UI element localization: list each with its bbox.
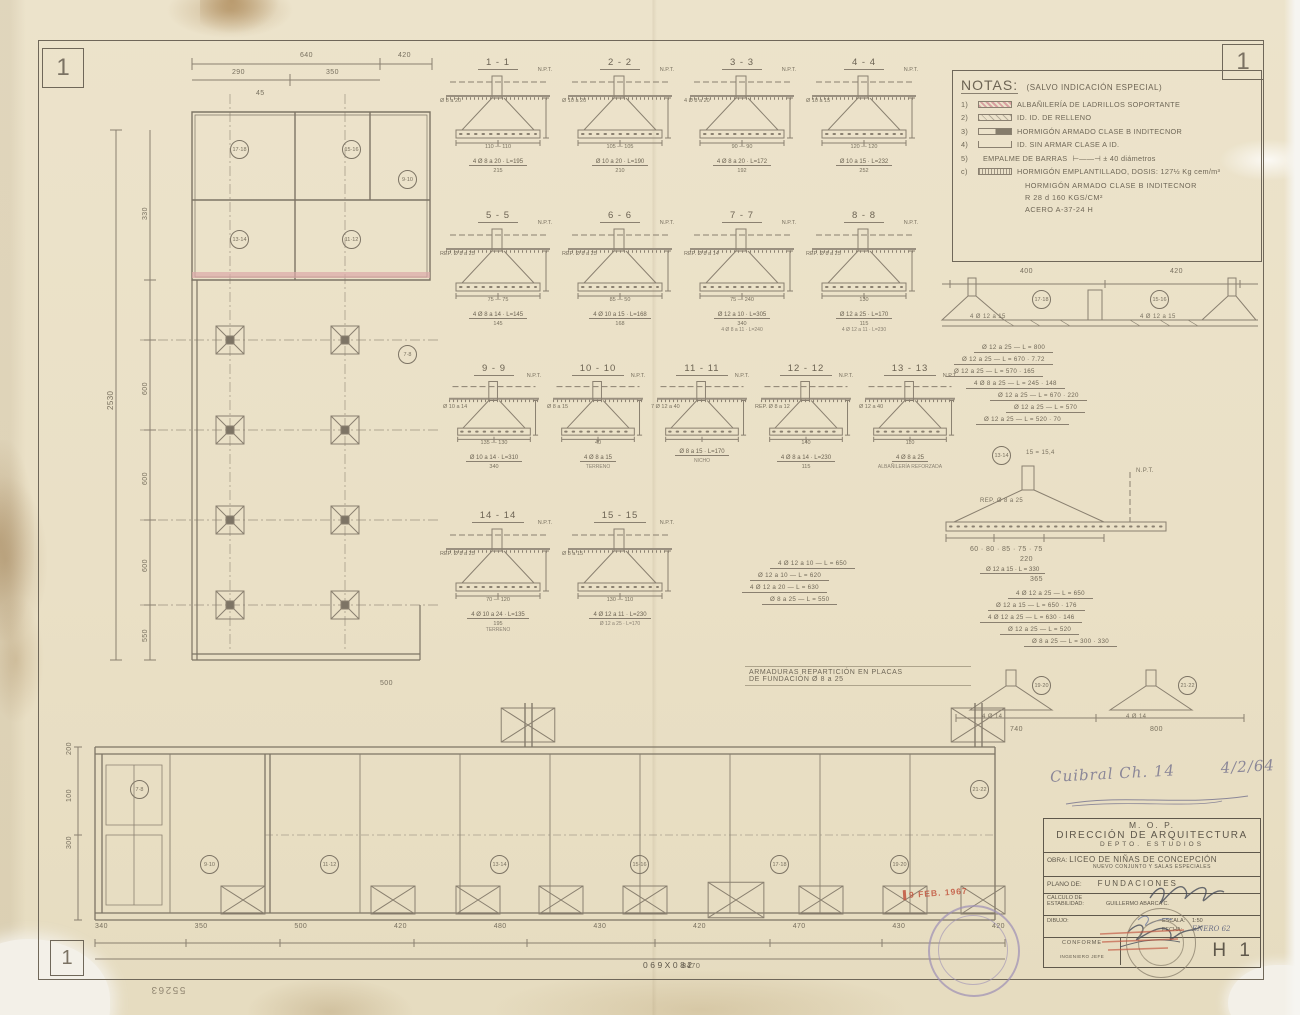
rebar-note: Ø 8 a 15 <box>562 551 583 557</box>
rebar-extra: 4 Ø 12 a 11 · L=230 <box>808 327 920 333</box>
legend-swatch <box>978 168 1012 175</box>
rebar-note: REP. Ø 8 a 25 <box>440 551 475 557</box>
note-text: HORMIGÓN EMPLANTILLADO, DOSIS: 127½ Kg c… <box>1017 167 1220 176</box>
beam-elevation-linework <box>940 276 1260 334</box>
legend-swatch <box>978 128 1012 135</box>
foundation-section-figure: 2 - 2 N.P.T. Ø 10 a 20 105 — 105 Ø 10 a … <box>564 52 676 174</box>
armaduras-line2: DE FUNDACIÓN Ø 8 a 25 <box>749 676 967 683</box>
org-line3: DEPTO. ESTUDIOS <box>1044 841 1260 848</box>
rebar-note: REP. Ø 8 a 25 <box>980 498 1023 504</box>
dim-label: 430 <box>593 923 606 930</box>
section-linework <box>549 378 647 442</box>
note-number: 2) <box>961 113 973 122</box>
note-number: 4) <box>961 140 973 149</box>
rebar-note: Ø 10 a 20 <box>562 98 586 104</box>
annotation-date: 4/2/64 <box>1220 756 1275 777</box>
annotation-underline <box>1062 792 1252 808</box>
npt-label: N.P.T. <box>839 373 853 379</box>
dim-label: 480 <box>494 923 507 930</box>
corner-number: 1 <box>56 54 69 82</box>
rebar-schedule-line: 4 Ø 8 a 25 — L = 245 · 148 <box>966 380 1065 389</box>
npt-label: N.P.T. <box>660 520 674 526</box>
circular-stamp-purple-inner <box>938 915 1008 985</box>
lower-foundation-plan: 340350500420480430420470430420 8470 2001… <box>70 695 1020 985</box>
section-linework <box>442 225 554 299</box>
rebar-note: REP. Ø 8 a 25 <box>806 251 841 257</box>
legend-swatch <box>978 141 1012 148</box>
npt-label: N.P.T. <box>1136 468 1154 474</box>
reference-bubble: 7·8 <box>130 780 149 799</box>
reference-bubble: 15·16 <box>1150 290 1169 309</box>
foundation-section-figure: 11 - 11 N.P.T. 7 Ø 12 a 40 Ø 8 a 15 · L=… <box>653 358 751 470</box>
section-total: 192 <box>686 168 798 174</box>
dim-label: 420 <box>1170 268 1183 275</box>
rebar-callout: Ø 12 a 10 · L=305 <box>714 312 771 319</box>
section-label: 13 - 13 <box>884 363 937 376</box>
note-number: c) <box>961 167 973 176</box>
rebar-schedule-line: Ø 12 a 15 — L = 650 · 176 <box>988 602 1085 611</box>
paper-stain <box>0 440 34 640</box>
notes-title: NOTAS: <box>961 77 1018 94</box>
npt-label: N.P.T. <box>735 373 749 379</box>
drawing-number-stamp: 069X082 <box>643 960 695 970</box>
rebar-schedule-line: Ø 8 a 25 — L = 550 <box>762 596 837 605</box>
foundation-section-figure: 9 - 9 N.P.T. Ø 10 a 14 135 — 130 Ø 10 a … <box>445 358 543 470</box>
rebar-note: REP. Ø 8 a 14 <box>684 251 719 257</box>
rebar-note: REP. Ø 8 a 25 <box>440 251 475 257</box>
rebar-schedule-line: Ø 8 a 25 — L = 300 · 330 <box>1024 638 1117 647</box>
rebar-schedule-line: Ø 12 a 10 — L = 620 <box>750 572 829 581</box>
foundation-section-figure: 4 - 4 N.P.T. Ø 10 a 15 120 — 120 Ø 10 a … <box>808 52 920 174</box>
section-linework <box>757 378 855 442</box>
rebar-extra: NICHO <box>653 458 751 464</box>
rebar-schedule-line: Ø 12 a 25 — L = 570 <box>1006 404 1085 413</box>
corner-box-top-left: 1 <box>42 48 84 88</box>
section-label: 15 - 15 <box>594 510 647 523</box>
rebar-schedule-line: 4 Ø 12 a 25 — L = 630 · 146 <box>980 614 1082 623</box>
rebar-schedule-line: Ø 12 a 25 — L = 520 · 70 <box>976 416 1069 425</box>
reference-bubble: 13·14 <box>230 230 249 249</box>
section-linework <box>442 525 554 599</box>
footing-detail-linework <box>944 464 1174 544</box>
dim-label: 500 <box>380 680 393 687</box>
dim-label: 340 <box>95 923 108 930</box>
org-line1: M. O. P. <box>1044 820 1260 830</box>
dim-label: 500 <box>294 923 307 930</box>
npt-label: N.P.T. <box>660 67 674 73</box>
note-line: c) HORMIGÓN EMPLANTILLADO, DOSIS: 127½ K… <box>961 167 1253 176</box>
reference-bubble: 9·10 <box>398 170 417 189</box>
reference-bubble: 11·12 <box>320 855 339 874</box>
rebar-note: 4 Ø 8 a 20 <box>684 98 710 104</box>
rebar-schedule-2: 4 Ø 12 a 25 — L = 650Ø 12 a 15 — L = 650… <box>980 590 1117 647</box>
dim-label: 45 <box>256 90 265 97</box>
plano-label: PLANO DE: <box>1047 881 1082 888</box>
npt-label: N.P.T. <box>904 220 918 226</box>
reference-bubble: 17·18 <box>1032 290 1051 309</box>
foundation-section-figure: 5 - 5 N.P.T. REP. Ø 8 a 25 75 — 75 4 Ø 8… <box>442 205 554 333</box>
foundation-section-figure: 14 - 14 N.P.T. REP. Ø 8 a 25 70 — 120 4 … <box>442 505 554 633</box>
rebar-note: Ø 8 a 15 <box>547 404 568 410</box>
npt-label: N.P.T. <box>527 373 541 379</box>
reference-bubble: 15·16 <box>342 140 361 159</box>
section-label: 11 - 11 <box>676 363 727 376</box>
dim-label: 300 <box>66 836 73 849</box>
rebar-callout: Ø 10 a 20 · L=190 <box>592 159 649 166</box>
rebar-note: Ø 8 a 20 <box>440 98 461 104</box>
section-linework <box>808 225 920 299</box>
note-line: 2) ID. ID. DE RELLENO <box>961 113 1253 122</box>
section-linework <box>445 378 543 442</box>
foundation-section-figure: 3 - 3 N.P.T. 4 Ø 8 a 20 90 — 90 4 Ø 8 a … <box>686 52 798 174</box>
dim-label: 420 <box>693 923 706 930</box>
dim-label: 600 <box>142 559 149 572</box>
upper-plan-linework <box>80 50 450 710</box>
reference-bubble: 11·12 <box>342 230 361 249</box>
npt-label: N.P.T. <box>782 67 796 73</box>
reference-bubble: 13·14 <box>490 855 509 874</box>
rebar-callout: 4 Ø 14 <box>1126 714 1146 720</box>
rebar-callout: Ø 12 a 25 · L=170 <box>836 312 893 319</box>
dim-total-label: 365 <box>1030 576 1043 583</box>
reference-bubble: 17·18 <box>770 855 789 874</box>
legend-swatch <box>978 101 1012 108</box>
obra-label: OBRA: <box>1047 857 1067 864</box>
npt-label: N.P.T. <box>660 220 674 226</box>
note-line: 4) ID. SIN ARMAR CLASE A ID. <box>961 140 1253 149</box>
rebar-schedule-line: Ø 12 a 25 — L = 670 · 7.72 <box>954 356 1053 365</box>
rebar-note: Ø 10 a 15 <box>806 98 830 104</box>
dim-total-label: 2530 <box>106 391 115 410</box>
section-label: 3 - 3 <box>722 57 762 70</box>
dim-label: 420 <box>398 52 411 59</box>
section-total: 145 <box>442 321 554 327</box>
note-line: 3) HORMIGÓN ARMADO CLASE B INDITECNOR <box>961 127 1253 136</box>
dim-label: 600 <box>142 382 149 395</box>
rebar-callout: 4 Ø 8 a 14 · L=230 <box>777 455 835 462</box>
dibujo-label: DIBUJO: <box>1047 918 1069 924</box>
scan-edge <box>1284 0 1300 1015</box>
note-footer-line: ACERO A-37-24 H <box>1025 205 1253 214</box>
lower-plan-linework <box>70 695 1020 975</box>
rebar-schedule-3: 4 Ø 12 a 10 — L = 650Ø 12 a 10 — L = 620… <box>742 560 855 605</box>
rebar-callout: Ø 10 a 15 · L=232 <box>836 159 893 166</box>
npt-label: N.P.T. <box>538 67 552 73</box>
foundation-elevations: 400 420 17·18 15·16 4 Ø 12 a 15 4 Ø 12 a… <box>940 268 1270 748</box>
conforme-sub: INGENIERO JEFE <box>1044 954 1120 959</box>
dim-label: 400 <box>1020 268 1033 275</box>
rebar-callout: Ø 8 a 15 · L=170 <box>675 449 728 456</box>
org-line2: DIRECCIÓN DE ARQUITECTURA <box>1044 830 1260 841</box>
section-label: 8 - 8 <box>844 210 884 223</box>
npt-label: N.P.T. <box>538 220 552 226</box>
section-label: 2 - 2 <box>600 57 640 70</box>
blueprint-sheet: 1 1 1 <box>0 0 1300 1015</box>
rebar-extra: 4 Ø 8 a 11 · L=240 <box>686 327 798 333</box>
section-label: 6 - 6 <box>600 210 640 223</box>
section-row-2: 5 - 5 N.P.T. REP. Ø 8 a 25 75 — 75 4 Ø 8… <box>442 205 920 333</box>
rebar-callout: 4 Ø 8 a 25 <box>892 455 928 462</box>
section-label: 10 - 10 <box>572 363 625 376</box>
section-linework <box>686 72 798 146</box>
rebar-note: 7 Ø 12 a 40 <box>651 404 680 410</box>
red-stamp-marks <box>1098 928 1188 954</box>
section-row-1: 1 - 1 N.P.T. Ø 8 a 20 110 — 110 4 Ø 8 a … <box>442 52 920 174</box>
rebar-note: Ø 12 a 40 <box>859 404 883 410</box>
notes-subtitle: (SALVO INDICACIÓN ESPECIAL) <box>1027 83 1163 92</box>
note-footer-line: HORMIGÓN ARMADO CLASE B INDITECNOR <box>1025 181 1253 190</box>
rebar-callout: 4 Ø 12 a 15 <box>1140 314 1176 320</box>
note-line: 1) ALBAÑILERÍA DE LADRILLOS SOPORTANTE <box>961 100 1253 109</box>
section-linework <box>564 525 676 599</box>
note-text: HORMIGÓN ARMADO CLASE B INDITECNOR <box>1017 127 1182 136</box>
note-text: ALBAÑILERÍA DE LADRILLOS SOPORTANTE <box>1017 100 1180 109</box>
note-number: 3) <box>961 127 973 136</box>
section-total: 252 <box>808 168 920 174</box>
npt-label: N.P.T. <box>782 220 796 226</box>
dim-label: 290 <box>232 69 245 76</box>
foundation-section-figure: 1 - 1 N.P.T. Ø 8 a 20 110 — 110 4 Ø 8 a … <box>442 52 554 174</box>
rebar-schedule-1: Ø 12 a 25 — L = 800Ø 12 a 25 — L = 670 ·… <box>946 344 1087 425</box>
notes-footer: HORMIGÓN ARMADO CLASE B INDITECNORR 28 d… <box>961 181 1253 214</box>
rebar-note: Ø 10 a 14 <box>443 404 467 410</box>
dim-label: 350 <box>326 69 339 76</box>
notes-box: NOTAS: (SALVO INDICACIÓN ESPECIAL) 1) AL… <box>952 70 1262 262</box>
dim-label: 330 <box>142 207 149 220</box>
npt-label: N.P.T. <box>904 67 918 73</box>
armaduras-line1: ARMADURAS REPARTICIÓN EN PLACAS <box>749 669 967 676</box>
foundation-section-figure: 15 - 15 N.P.T. Ø 8 a 15 130 — 110 4 Ø 12… <box>564 505 676 633</box>
npt-label: N.P.T. <box>631 373 645 379</box>
dim-label: 430 <box>892 923 905 930</box>
npt-label: N.P.T. <box>538 520 552 526</box>
note-text: EMPALME DE BARRAS <box>983 154 1067 163</box>
section-row-4: 14 - 14 N.P.T. REP. Ø 8 a 25 70 — 120 4 … <box>442 505 676 633</box>
rebar-extra: TERRENO <box>442 627 554 633</box>
archive-number: 55263 <box>150 984 185 995</box>
reference-bubble: 15·16 <box>630 855 649 874</box>
section-label: 14 - 14 <box>472 510 525 523</box>
section-label: 4 - 4 <box>844 57 884 70</box>
dim-label: 420 <box>394 923 407 930</box>
reference-bubble: 21·22 <box>1178 676 1197 695</box>
foundation-section-figure: 10 - 10 N.P.T. Ø 8 a 15 40 4 Ø 8 a 15 TE… <box>549 358 647 470</box>
obra-subtitle: NUEVO CONJUNTO Y SALAS ESPECIALES <box>1047 864 1257 870</box>
foundation-section-figure: 7 - 7 N.P.T. REP. Ø 8 a 14 75 — 240 Ø 12… <box>686 205 798 333</box>
note-text: ID. SIN ARMAR CLASE A ID. <box>1017 140 1119 149</box>
note-line: 5) EMPALME DE BARRAS ⊢——⊣ ± 40 diámetros <box>961 154 1253 163</box>
rebar-callout: 4 Ø 8 a 20 · L=195 <box>469 159 527 166</box>
section-label: 1 - 1 <box>478 57 518 70</box>
section-total: 115 <box>757 464 855 470</box>
rebar-schedule-line: 4 Ø 12 a 10 — L = 650 <box>770 560 855 569</box>
rebar-callout: 4 Ø 10 a 15 · L=168 <box>589 312 651 319</box>
rebar-callout: 4 Ø 10 a 24 · L=135 <box>467 612 529 619</box>
section-linework <box>653 378 751 442</box>
obra-value: LICEO DE NIÑAS DE CONCEPCIÓN <box>1069 855 1217 864</box>
dim-label: 470 <box>793 923 806 930</box>
note-footer-line: R 28 d 160 KGS/CM² <box>1025 193 1253 202</box>
rebar-callout: 4 Ø 8 a 15 <box>580 455 616 462</box>
dim-label: 100 <box>66 789 73 802</box>
note-extra: ⊢——⊣ ± 40 diámetros <box>1072 154 1155 163</box>
reference-bubble: 19·20 <box>890 855 909 874</box>
rebar-note: REP. Ø 8 a 25 <box>562 251 597 257</box>
rebar-extra: Ø 12 a 25 · L=170 <box>564 621 676 627</box>
rebar-note: REP. Ø 8 a 12 <box>755 404 790 410</box>
section-linework <box>808 72 920 146</box>
dim-label: 200 <box>66 742 73 755</box>
section-total: 168 <box>564 321 676 327</box>
detail-note: 15 = 15,4 <box>1026 450 1055 456</box>
rebar-callout: Ø 12 a 15 · L = 330 <box>980 566 1045 574</box>
dim-total-label: 220 <box>1020 556 1033 563</box>
lower-plan-left-dims: 200100300 <box>12 755 25 856</box>
rebar-schedule-line: 4 Ø 12 a 20 — L = 630 <box>742 584 827 593</box>
rebar-schedule-line: Ø 12 a 25 — L = 670 · 220 <box>990 392 1087 401</box>
lower-plan-dimension-chain: 340350500420480430420470430420 <box>95 923 1005 930</box>
rebar-callout: Ø 10 a 14 · L=310 <box>466 455 523 462</box>
section-total: 215 <box>442 168 554 174</box>
armaduras-note: ARMADURAS REPARTICIÓN EN PLACAS DE FUNDA… <box>745 666 971 686</box>
reference-bubble: 9·10 <box>200 855 219 874</box>
reference-bubble: 19·20 <box>1032 676 1051 695</box>
dim-label: 550 <box>142 629 149 642</box>
dim-label: 60 · 80 · 85 · 75 · 75 <box>970 546 1043 553</box>
section-label: 5 - 5 <box>478 210 518 223</box>
rebar-callout: 4 Ø 8 a 14 · L=145 <box>469 312 527 319</box>
reference-bubble: 21·22 <box>970 780 989 799</box>
notes-list: 1) ALBAÑILERÍA DE LADRILLOS SOPORTANTE 2… <box>961 100 1253 177</box>
section-label: 9 - 9 <box>474 363 514 376</box>
legend-swatch <box>978 114 1012 121</box>
note-text: ID. ID. DE RELLENO <box>1017 113 1091 122</box>
dim-label: 350 <box>195 923 208 930</box>
section-linework <box>442 72 554 146</box>
rebar-schedule-line: Ø 12 a 25 — L = 520 <box>1000 626 1079 635</box>
foundation-section-figure: 12 - 12 N.P.T. REP. Ø 8 a 12 140 4 Ø 8 a… <box>757 358 855 470</box>
rebar-extra: TERRENO <box>549 464 647 470</box>
foundation-section-figure: 6 - 6 N.P.T. REP. Ø 8 a 25 85 — 50 4 Ø 1… <box>564 205 676 333</box>
rebar-callout: 4 Ø 12 a 11 · L=230 <box>589 612 650 619</box>
reference-bubble: 7·8 <box>398 345 417 364</box>
dim-label: 640 <box>300 52 313 59</box>
paper-stain <box>200 0 280 34</box>
dim-label: 600 <box>142 472 149 485</box>
section-label: 12 - 12 <box>780 363 833 376</box>
rebar-schedule-line: Ø 12 a 25 — L = 800 <box>974 344 1053 353</box>
upper-foundation-plan: 640 420 290 350 45 330 600 600 600 550 2… <box>80 50 450 710</box>
section-label: 7 - 7 <box>722 210 762 223</box>
rebar-schedule-line: Ø 12 a 25 — L = 570 · 165 <box>946 368 1043 377</box>
foundation-section-figure: 8 - 8 N.P.T. REP. Ø 8 a 25 130 Ø 12 a 25… <box>808 205 920 333</box>
section-linework <box>564 72 676 146</box>
reference-bubble: 17·18 <box>230 140 249 159</box>
section-total: 340 <box>445 464 543 470</box>
note-number: 1) <box>961 100 973 109</box>
section-linework <box>564 225 676 299</box>
rebar-callout: 4 Ø 12 a 15 <box>970 314 1006 320</box>
section-row-3: 9 - 9 N.P.T. Ø 10 a 14 135 — 130 Ø 10 a … <box>445 358 959 470</box>
section-total: 210 <box>564 168 676 174</box>
reference-bubble: 13·14 <box>992 446 1011 465</box>
section-linework <box>686 225 798 299</box>
dim-label: 800 <box>1150 726 1163 733</box>
note-number: 5) <box>961 154 973 163</box>
rebar-schedule-line: 4 Ø 12 a 25 — L = 650 <box>1008 590 1093 599</box>
rebar-callout: 4 Ø 8 a 20 · L=172 <box>713 159 771 166</box>
